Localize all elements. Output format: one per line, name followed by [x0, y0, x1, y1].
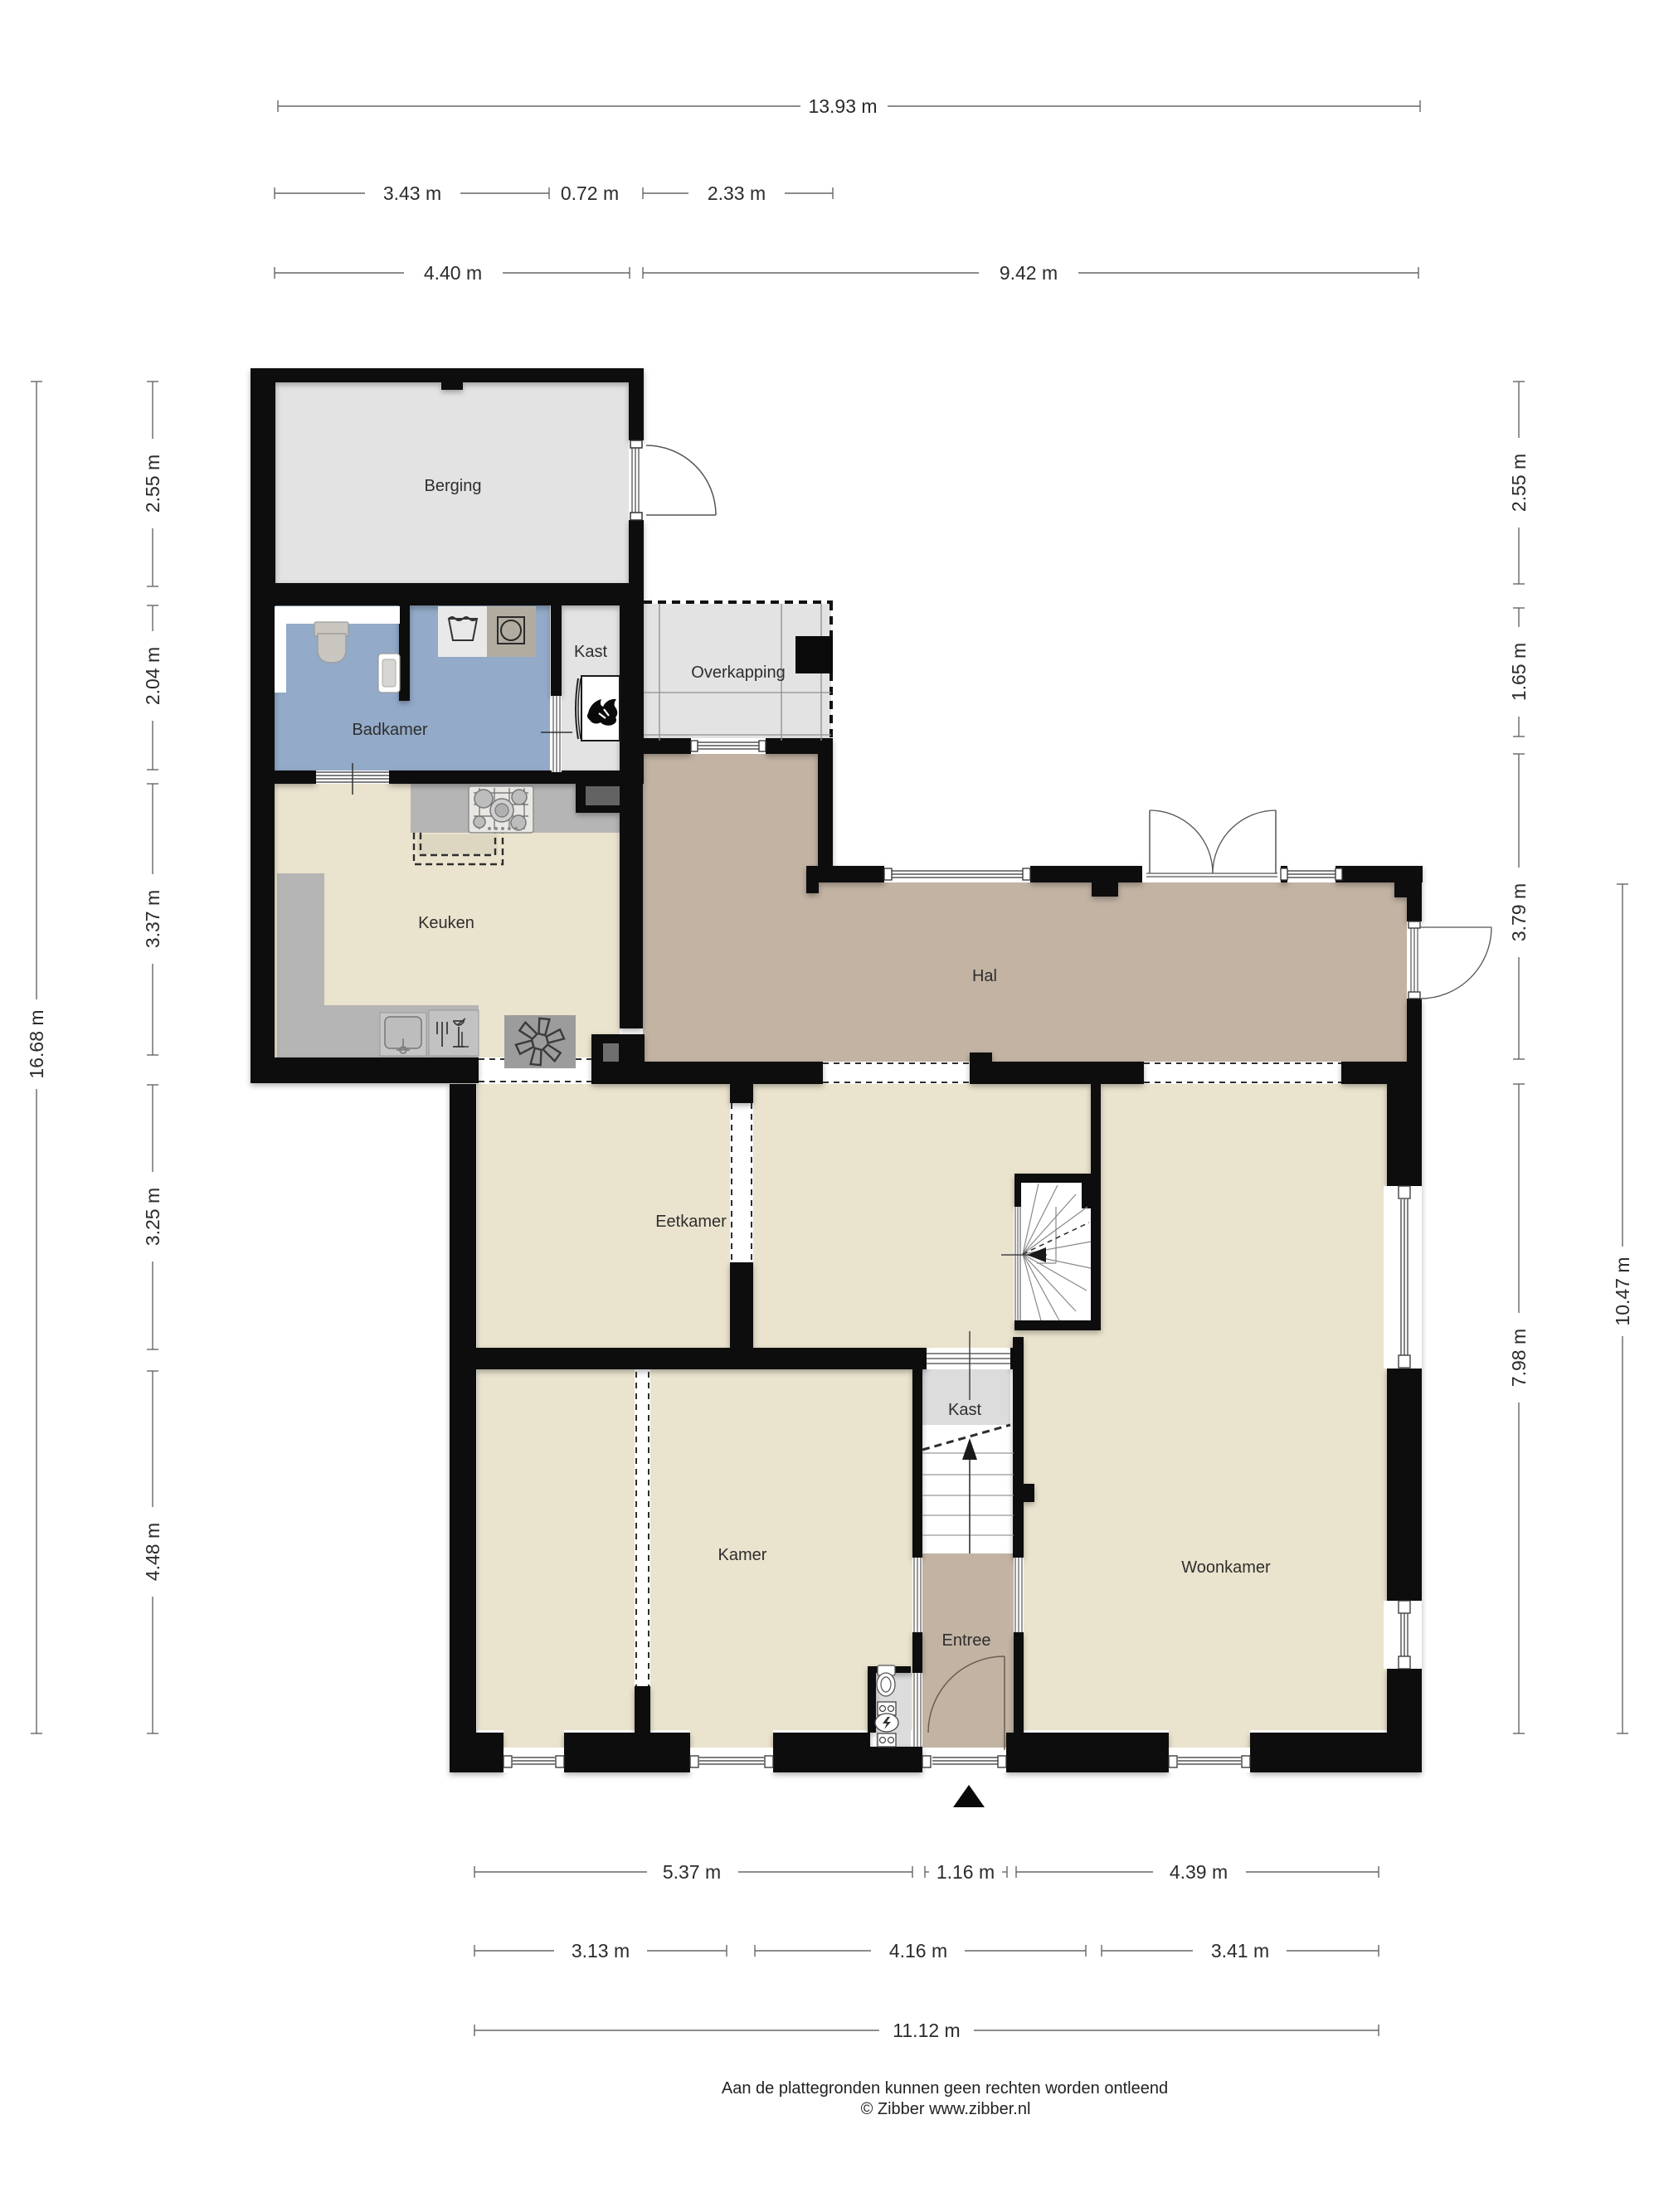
- svg-text:0.72 m: 0.72 m: [561, 182, 619, 204]
- svg-text:© Zibber www.zibber.nl: © Zibber www.zibber.nl: [861, 2100, 1031, 2118]
- svg-text:13.93 m: 13.93 m: [808, 95, 877, 117]
- svg-text:3.43 m: 3.43 m: [383, 182, 441, 204]
- svg-text:Kast: Kast: [574, 643, 607, 661]
- svg-text:Hal: Hal: [972, 967, 997, 985]
- svg-text:2.55 m: 2.55 m: [142, 455, 163, 513]
- svg-text:2.55 m: 2.55 m: [1508, 454, 1530, 512]
- svg-text:3.37 m: 3.37 m: [142, 890, 163, 948]
- svg-text:Kast: Kast: [948, 1401, 981, 1419]
- svg-text:4.48 m: 4.48 m: [142, 1523, 163, 1581]
- svg-text:3.41 m: 3.41 m: [1211, 1940, 1269, 1962]
- svg-text:7.98 m: 7.98 m: [1508, 1329, 1530, 1387]
- svg-text:Eetkamer: Eetkamer: [655, 1213, 727, 1231]
- svg-text:5.37 m: 5.37 m: [663, 1861, 721, 1883]
- svg-text:Badkamer: Badkamer: [352, 721, 427, 739]
- svg-text:4.16 m: 4.16 m: [889, 1940, 947, 1962]
- svg-text:10.47 m: 10.47 m: [1612, 1257, 1633, 1325]
- svg-text:Entree: Entree: [942, 1631, 991, 1650]
- svg-text:Kamer: Kamer: [718, 1546, 767, 1564]
- svg-text:Keuken: Keuken: [418, 914, 474, 932]
- svg-text:11.12 m: 11.12 m: [893, 2020, 960, 2041]
- svg-text:Overkapping: Overkapping: [691, 664, 785, 682]
- svg-text:2.04 m: 2.04 m: [142, 647, 163, 705]
- svg-text:4.39 m: 4.39 m: [1170, 1861, 1228, 1883]
- svg-text:9.42 m: 9.42 m: [1000, 262, 1058, 284]
- svg-text:1.16 m: 1.16 m: [937, 1861, 995, 1883]
- svg-text:Aan de plattegronden kunnen ge: Aan de plattegronden kunnen geen rechten…: [722, 2079, 1168, 2098]
- svg-text:3.25 m: 3.25 m: [142, 1188, 163, 1246]
- svg-text:3.13 m: 3.13 m: [572, 1940, 630, 1962]
- svg-text:3.79 m: 3.79 m: [1508, 883, 1530, 941]
- svg-text:4.40 m: 4.40 m: [424, 262, 482, 284]
- svg-text:16.68 m: 16.68 m: [26, 1009, 47, 1078]
- svg-text:1.65 m: 1.65 m: [1508, 643, 1530, 701]
- svg-text:2.33 m: 2.33 m: [708, 182, 766, 204]
- svg-text:Berging: Berging: [425, 477, 482, 495]
- svg-text:Woonkamer: Woonkamer: [1181, 1558, 1271, 1577]
